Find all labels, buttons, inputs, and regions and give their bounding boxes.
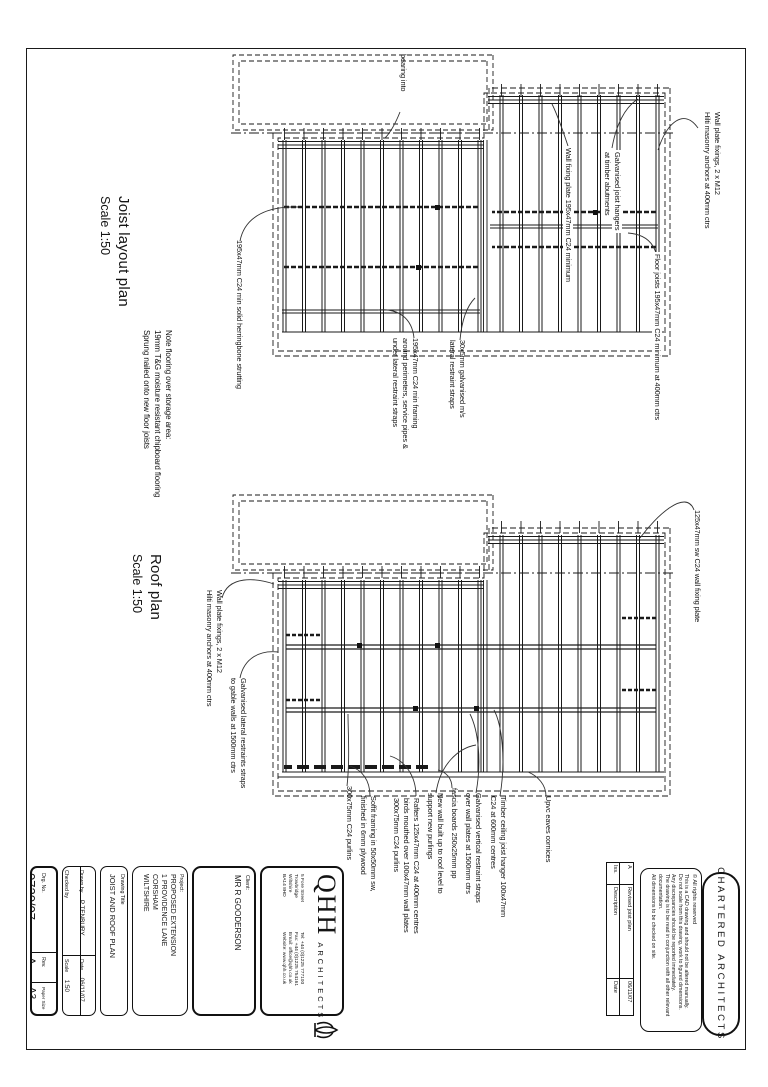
annotation-perimeter-framing: 195x47mm C24 min framing around perimete… [390, 338, 420, 449]
firm-type-label: ARCHITECTS [316, 942, 325, 1020]
annotation-rafters: Rafters 125x47mm C24 at 400mm centres bi… [391, 798, 421, 934]
annotation-roof-wall-fixing-plate: 125x47mm sw C24 wall fixing plate [692, 510, 702, 622]
annotation-wall-fixing-plate: Wall fixing plate 195x47mm C24 minimum [563, 146, 573, 284]
rafter-field-upper [488, 535, 660, 772]
rafter-field-lower [282, 580, 482, 772]
roof-plan-drawing [228, 495, 673, 796]
paper-size-value: A3 [30, 987, 37, 1010]
scale-value: 1:50 [64, 980, 71, 992]
drg-no-label: Drg. No. [40, 873, 46, 893]
drg-no-value: 0720/07 [30, 873, 37, 947]
flooring-note: Note flooring over storage area: 19mm T&… [141, 330, 174, 497]
annotation-eaves: Upvc eaves cornices [543, 796, 553, 862]
annotation-fascia: fascia boards 250x25mm pp [449, 788, 459, 878]
existing-house-outline [233, 55, 493, 130]
joist-ticks [502, 84, 658, 96]
revision-header-row: Iss. Description Date [607, 863, 620, 1015]
rev-value: A [30, 957, 37, 978]
existing-house-outline-roof [233, 495, 493, 570]
drawing-title-panel: Drawing Title JOIST AND ROOF PLAN [100, 866, 128, 1016]
client-panel: Client: MR R GOODERSON [192, 866, 256, 1016]
annotation-joist-hangers: Galvanised joist hangers at timber abutm… [602, 150, 622, 233]
joist-field-lower [282, 140, 482, 332]
client-label: Client: [244, 875, 250, 1007]
drawn-by-label: Drawn by [79, 870, 85, 892]
revision-table: A Revised joist plan 06/11/07 Iss. Descr… [606, 862, 634, 1016]
checked-by-label: Checked by [64, 870, 70, 898]
annotation-new-wall: New wall built up to roof level to suppo… [425, 793, 445, 894]
annotation-ceiling-hanger: Timber ceiling joist hanger 100x47mm C24… [488, 796, 508, 917]
annotation-gable-straps: Galvanised lateral restraints straps to … [228, 678, 248, 788]
project-address: PROPOSED EXTENSION 1 PROVIDENCE LANE COR… [141, 874, 177, 1008]
revision-row: A Revised joist plan 06/11/07 [620, 863, 633, 1015]
annotation-lateral-straps: 30x5mm galvanised m/s lateral restraint … [447, 340, 467, 418]
joist-field-upper [488, 95, 660, 332]
project-label: Project: [178, 874, 184, 1008]
annotation-herringbone: 195x47mm C24 min solid herringbone strut… [234, 240, 244, 389]
drawing-title-label: Drawing Title [119, 874, 125, 1008]
drawing-sheet: Joist layout plan Scale 1:50 Note floori… [0, 0, 768, 1087]
firm-logo-text: QHH [313, 874, 339, 936]
firm-contact: Tel: +44 (0)1225 777100 Fax: +44 (0)1225… [280, 932, 304, 986]
firm-crest-icon [308, 1020, 339, 1040]
date-value: 06/11/07 [79, 978, 86, 1002]
annotation-roof-wall-plate: Wall plate fixings, 2 x M12 Hilti masonr… [204, 590, 224, 706]
annotation-purlins: 300x75mm C24 purlins [344, 786, 354, 860]
drawn-by-value: P TENBURY [79, 900, 86, 936]
copyright-line: © All rights reserved [690, 874, 697, 1026]
firm-address: 5 Fore Street Trowbridge Wiltshire BA14 … [280, 874, 304, 932]
chartered-architects-badge: CHARTERED ARCHITECTS [702, 872, 740, 1036]
annotation-vertical-straps: Galvanised vertical restraint straps ove… [463, 793, 483, 903]
client-name: MR R GOODERSON [233, 875, 242, 1007]
roof-plan-scale: Scale 1:50 [130, 554, 144, 613]
drawing-title: JOIST AND ROOF PLAN [109, 874, 118, 1008]
annotation-bearing-into: bearing into [398, 54, 408, 91]
notes-panel: © All rights reserved This is a CAD draw… [640, 868, 702, 1032]
project-panel: Project: PROPOSED EXTENSION 1 PROVIDENCE… [132, 866, 188, 1016]
drawing-page: Joist layout plan Scale 1:50 Note floori… [0, 0, 768, 1087]
joist-plan-title: Joist layout plan [115, 196, 132, 307]
paper-size-label: Paper Size [41, 987, 46, 1009]
rafter-ticks [502, 521, 658, 533]
roof-plan-title: Roof plan [147, 554, 164, 620]
scale-label: Scale [64, 959, 70, 972]
annotation-soffit: Soffit framing in 50x50mm sw, finished i… [358, 796, 378, 892]
annotation-wall-plate-fixings: Wall plate fixings, 2 x M12 Hilti masonr… [702, 112, 722, 228]
joist-plan-scale: Scale 1:50 [98, 196, 112, 255]
rev-label: Rev. [40, 957, 46, 968]
drawn-checked-panel: Drawn by P TENBURY Checked by Date 06/11… [62, 866, 96, 1016]
annotation-floor-joists: Floor joists 195x47mm C24 minimum at 400… [652, 252, 662, 422]
date-label: Date [79, 959, 85, 970]
drawing-number-panel: Drg. No. 0720/07 Rev. A Paper Size A3 [30, 866, 58, 1016]
firm-panel: QHH ARCHITECTS 5 Fore Street Trowbridge … [260, 866, 344, 1016]
